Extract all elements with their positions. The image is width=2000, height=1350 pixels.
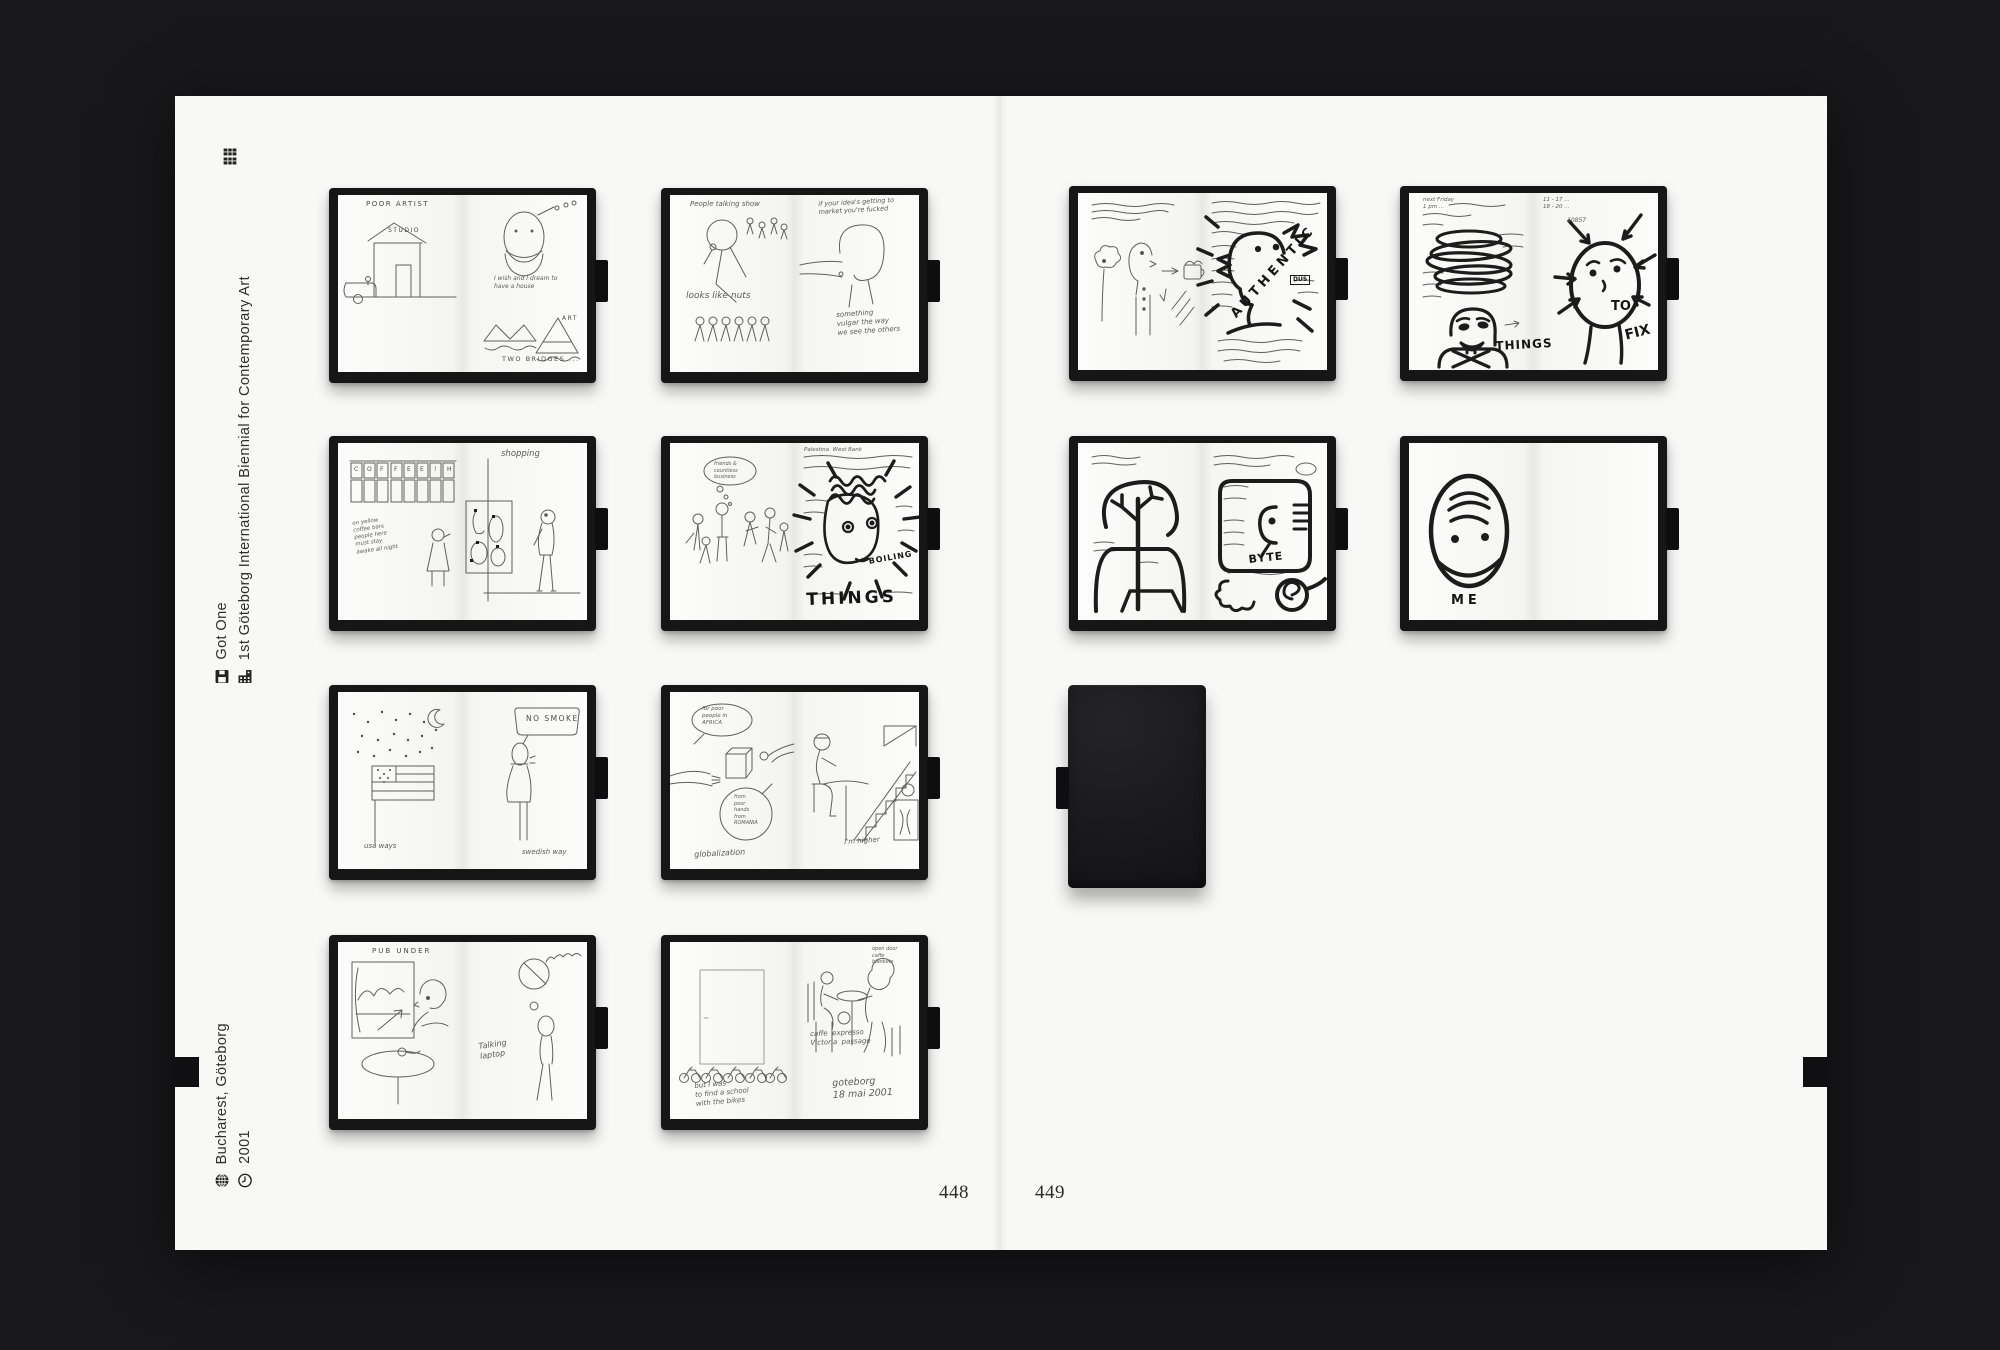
right-edge-bookmark-tab: [1803, 1057, 1827, 1087]
notebook-pages: PUB UNDER Talking laptop: [338, 942, 587, 1119]
bookmark-tab: [927, 757, 940, 799]
sketch-label: from poor hands from ROMANIA: [734, 794, 758, 827]
event-title: 1st Göteborg International Biennial for …: [238, 276, 253, 660]
sketch-label: TO: [1611, 299, 1631, 316]
margin-entry-event: 1st Göteborg International Biennial for …: [238, 236, 253, 684]
sketch-label: Palestina West Bank: [804, 447, 862, 454]
margin-title-block: Got One 1st Göteborg International Bienn…: [215, 236, 252, 684]
bookmark-tab: [595, 757, 608, 799]
sketch-label: STUDIO: [388, 227, 420, 235]
notebook-pages: for poor people in AFRICA from poor hand…: [670, 692, 919, 869]
notebook-pub-under: PUB UNDER Talking laptop: [329, 935, 596, 1130]
notebook-pages: BYTE: [1078, 443, 1327, 620]
margin-entry-title: Got One: [215, 236, 230, 684]
notebook-byte: BYTE: [1069, 436, 1336, 631]
globe-icon: [215, 1173, 229, 1188]
notebook-pages: People talking show looks like nuts if y…: [670, 195, 919, 372]
clock-icon: [238, 1173, 252, 1188]
margin-entry-location: Bucharest, Göteborg: [215, 1000, 230, 1188]
sketch-label: People talking show: [690, 200, 760, 209]
notebook-boiling-things: friends & countless business Palestina W…: [661, 436, 928, 631]
spread: Got One 1st Göteborg International Bienn…: [175, 96, 1827, 1250]
year-label: 2001: [238, 1130, 253, 1164]
sketch-label: friends & countless business: [714, 461, 738, 481]
page-gutter: [992, 96, 1008, 1250]
sketch-drawing: [670, 195, 919, 372]
notebook-pages: friends & countless business Palestina W…: [670, 443, 919, 620]
notebook-usa-swedish: usa ways NO SMOKE swedish way: [329, 685, 596, 880]
sketch-letter: F: [394, 466, 399, 474]
notebook-pages: POOR ARTIST STUDIO I wish and I dream to…: [338, 195, 587, 372]
sketch-label: looks like nuts: [686, 291, 751, 303]
sketch-label: for poor people in AFRICA: [702, 706, 727, 727]
project-title: Got One: [215, 602, 230, 660]
bookmark-tab: [1335, 258, 1348, 300]
building-icon: [238, 669, 252, 684]
sketch-label: next Friday 1 pm ...: [1423, 197, 1454, 211]
notebook-pages: next Friday 1 pm ... THINGS 11 - 17 ... …: [1409, 193, 1658, 370]
sketch-letter: E: [420, 466, 425, 474]
margin-entry-year: 2001: [238, 1000, 253, 1188]
bookmark-tab: [1056, 767, 1069, 809]
notebook-authentic: AUTHENTIC DUS: [1069, 186, 1336, 381]
sketch-label: something vulgar the way we see the othe…: [836, 307, 901, 339]
sketch-label: but I was to find a school with the bike…: [694, 1077, 750, 1109]
sketch-letter: !: [434, 466, 438, 474]
sketch-label: 11 - 17 ... 18 - 20 ...: [1543, 197, 1569, 211]
sketch-letter: H: [447, 466, 453, 474]
sketch-label: PUB UNDER: [372, 947, 431, 956]
sketch-label: on yellow coffee bars people here must s…: [352, 515, 398, 556]
sketch-letter: C: [354, 466, 360, 474]
notebook-poor-artist: POOR ARTIST STUDIO I wish and I dream to…: [329, 188, 596, 383]
notebook-globalization: for poor people in AFRICA from poor hand…: [661, 685, 928, 880]
sketch-drawing: [1409, 443, 1658, 620]
notebook-people-talking: People talking show looks like nuts if y…: [661, 188, 928, 383]
right-page-number: 449: [1035, 1182, 1061, 1204]
sketch-label: swedish way: [522, 848, 567, 857]
left-page-number: 448: [939, 1182, 965, 1204]
bookmark-tab: [595, 1007, 608, 1049]
sketch-label: 10857: [1567, 217, 1586, 225]
sketch-label: THINGS: [806, 586, 897, 611]
notebook-pages: usa ways NO SMOKE swedish way: [338, 692, 587, 869]
sketch-label: shopping: [501, 449, 540, 460]
book-spread-photo: Got One 1st Göteborg International Bienn…: [0, 0, 2000, 1350]
sketch-label: NO SMOKE: [526, 714, 579, 724]
sketch-label: usa ways: [364, 842, 396, 851]
sketch-label: caffe expresso Victoria passage: [810, 1028, 871, 1048]
sketch-label: open door caffe blankets: [872, 946, 897, 966]
notebook-pages: AUTHENTIC DUS: [1078, 193, 1327, 370]
bookmark-tab: [927, 508, 940, 550]
notebook-coffee-shopping: C O F F E E ! H on yellow coffee bars pe…: [329, 436, 596, 631]
sketch-label: POOR ARTIST: [366, 200, 429, 209]
sketch-label: goteborg 18 mai 2001: [832, 1075, 893, 1103]
notebook-things-to-fix: next Friday 1 pm ... THINGS 11 - 17 ... …: [1400, 186, 1667, 381]
bookmark-tab: [1335, 508, 1348, 550]
bookmark-tab: [1666, 508, 1679, 550]
notebook-goteborg-cafe: but I was to find a school with the bike…: [661, 935, 928, 1130]
grid-icon: [223, 148, 237, 165]
bookmark-tab: [595, 508, 608, 550]
notebook-pages: ME: [1409, 443, 1658, 620]
sketch-label: DUS: [1290, 275, 1310, 285]
sketch-label: Talking laptop: [478, 1038, 509, 1063]
bookmark-tab: [927, 1007, 940, 1049]
notebook-pages: but I was to find a school with the bike…: [670, 942, 919, 1119]
sketch-letter: F: [380, 466, 385, 474]
sketch-drawing: [338, 942, 587, 1119]
notebook-pages: C O F F E E ! H on yellow coffee bars pe…: [338, 443, 587, 620]
sketch-label: I wish and I dream to have a house: [494, 275, 557, 291]
sketch-label: TWO BRIDGES ...: [502, 355, 580, 363]
sketch-letter: O: [367, 466, 373, 474]
sketch-label: THINGS: [1495, 336, 1553, 355]
floppy-icon: [215, 669, 229, 684]
sketch-drawing: [1078, 443, 1327, 620]
sketch-letter: E: [407, 466, 412, 474]
margin-place-block: Bucharest, Göteborg 2001: [215, 1000, 252, 1188]
notebook-me: ME: [1400, 436, 1667, 631]
bookmark-tab: [595, 260, 608, 302]
location-label: Bucharest, Göteborg: [215, 1023, 230, 1164]
closed-sketchbook: [1068, 685, 1206, 888]
bookmark-tab: [927, 260, 940, 302]
bookmark-tab: [1666, 258, 1679, 300]
left-edge-bookmark-tab: [175, 1057, 199, 1087]
sketch-label: ART: [562, 315, 578, 323]
sketch-label: ME: [1451, 593, 1481, 610]
